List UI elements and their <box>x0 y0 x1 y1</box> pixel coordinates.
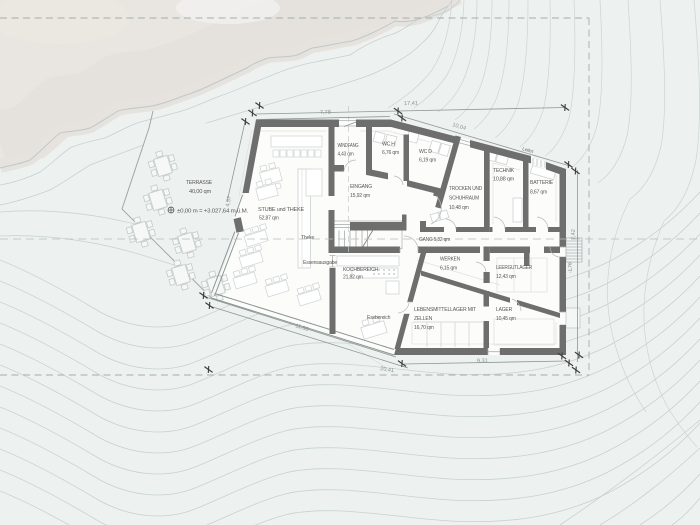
svg-text:TERRASSE: TERRASSE <box>186 180 213 186</box>
svg-text:WINDFANG: WINDFANG <box>338 143 359 149</box>
svg-text:52,87 qm: 52,87 qm <box>259 216 279 222</box>
svg-text:Theke: Theke <box>301 235 315 241</box>
svg-text:7,78: 7,78 <box>320 110 331 116</box>
svg-text:15,92 qm: 15,92 qm <box>350 193 370 199</box>
svg-text:7,42: 7,42 <box>571 229 577 240</box>
svg-text:12,43 qm: 12,43 qm <box>496 274 516 280</box>
svg-text:±0,00 m = +3.027,64 m.ü.M.: ±0,00 m = +3.027,64 m.ü.M. <box>177 209 248 215</box>
svg-text:TROCKEN UND: TROCKEN UND <box>449 186 482 192</box>
svg-text:BATTERIE: BATTERIE <box>530 180 554 186</box>
svg-text:10,88 qm: 10,88 qm <box>493 177 514 183</box>
svg-text:WC H: WC H <box>382 142 395 148</box>
svg-text:Essbereich: Essbereich <box>367 315 391 321</box>
svg-text:4,43 qm: 4,43 qm <box>338 152 354 158</box>
svg-text:-1,70: -1,70 <box>568 262 574 273</box>
svg-text:SCHUHRAUM: SCHUHRAUM <box>449 196 479 202</box>
svg-text:Essensausgabe: Essensausgabe <box>303 260 337 266</box>
svg-text:WERKEN: WERKEN <box>440 257 460 263</box>
svg-text:LAGER: LAGER <box>496 307 512 313</box>
svg-text:LEBENSMITTELLAGER MIT: LEBENSMITTELLAGER MIT <box>414 307 476 313</box>
svg-text:6,15 qm: 6,15 qm <box>440 266 457 272</box>
svg-text:6,76 qm: 6,76 qm <box>382 150 399 156</box>
svg-text:EINGANG: EINGANG <box>350 184 372 190</box>
svg-text:17,41: 17,41 <box>404 101 418 107</box>
svg-text:21,82 qm: 21,82 qm <box>343 275 363 281</box>
svg-text:16,70 qm: 16,70 qm <box>414 325 434 331</box>
svg-text:STUBE und THEKE: STUBE und THEKE <box>258 207 305 213</box>
svg-text:10,45 qm: 10,45 qm <box>496 316 516 322</box>
svg-text:GANG 5,82 qm: GANG 5,82 qm <box>419 237 450 243</box>
svg-text:ZELLEN: ZELLEN <box>414 316 433 322</box>
svg-text:8,67 qm: 8,67 qm <box>530 190 547 196</box>
svg-text:10,48 qm: 10,48 qm <box>449 205 469 211</box>
svg-text:LEERGUTLAGER: LEERGUTLAGER <box>496 265 532 271</box>
svg-text:TECHNIK: TECHNIK <box>493 168 515 174</box>
svg-text:40,00 qm: 40,00 qm <box>189 189 211 195</box>
svg-text:9,31: 9,31 <box>477 358 488 364</box>
svg-text:KOCHBEREICH: KOCHBEREICH <box>343 267 379 273</box>
svg-text:WC D: WC D <box>419 149 432 155</box>
svg-text:6,19 qm: 6,19 qm <box>419 158 436 164</box>
